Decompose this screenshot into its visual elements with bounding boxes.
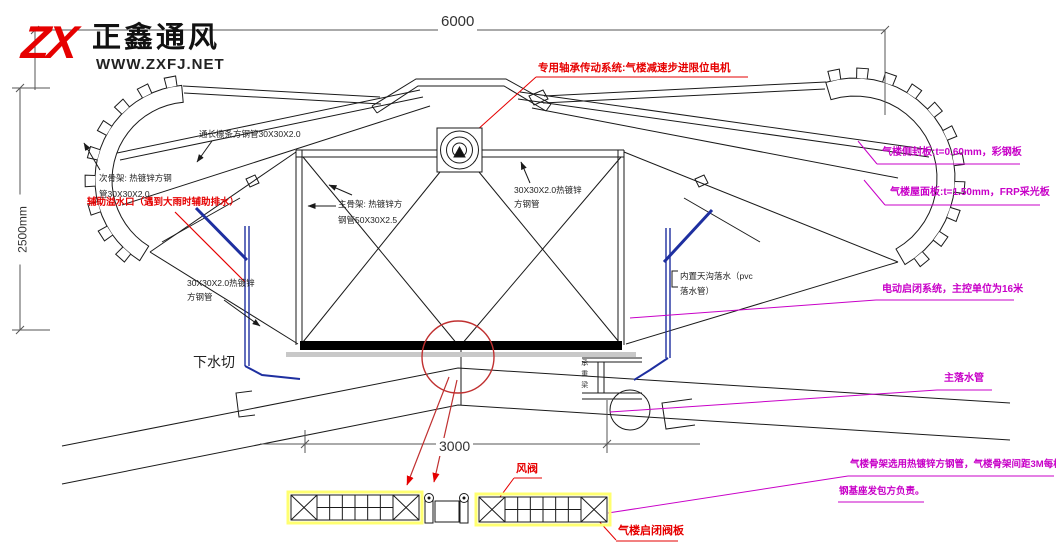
label-side-seal-panel: 气楼侧封板:t=0.60mm，彩钢板 [882, 147, 1022, 160]
company-website: WWW.ZXFJ.NET [96, 56, 225, 75]
dimension-bottom-width: 3000 [436, 438, 473, 456]
label-main-frame: 主骨架: 热镀锌方钢管50X30X2.5 [338, 196, 410, 228]
label-frame-note-2: 钢基座发包方负责。 [839, 486, 925, 498]
valve-panels [288, 492, 610, 525]
valve-bar [286, 341, 636, 357]
label-gutter: 内置天沟落水（pvc落水管） [680, 269, 758, 299]
label-air-valve: 风阀 [516, 463, 538, 477]
label-main-downpipe: 主落水管 [944, 373, 984, 386]
label-tube-left: 30X30X2.0热镀锌方钢管 [187, 276, 259, 304]
label-electric-system: 电动启闭系统，主控单位为16米 [882, 284, 1023, 297]
castellated-crests [85, 68, 965, 267]
label-water-cut: 下水切 [193, 354, 235, 372]
label-tube-right: 30X30X2.0热镀锌方钢管 [514, 183, 586, 211]
label-purlin: 通长檩条方钢管30X30X2.0 [199, 129, 301, 140]
dimension-left-height: 2500mm [16, 195, 31, 265]
company-logo-icon: ZX [19, 14, 78, 72]
cad-drawing-page: ZX 正鑫通风 WWW.ZXFJ.NET 6000 2500mm 3000 专用… [0, 0, 1056, 557]
label-beam: 承重梁 [579, 359, 588, 392]
label-secondary-frame: 次骨架: 热镀锌方钢管30X30X2.0 [99, 170, 177, 202]
label-roof-sheet-panel: 气楼屋面板:t=1.50mm，FRP采光板 [890, 187, 1050, 200]
label-valve-plate: 气楼启闭阀板 [618, 525, 684, 539]
dimension-top-width: 6000 [438, 13, 477, 32]
label-frame-note-1: 气楼骨架选用热镀锌方钢管，气楼骨架间距3M每榀 [850, 459, 1056, 471]
label-drive-system: 专用轴承传动系统:气楼减速步进限位电机 [538, 62, 731, 75]
company-name: 正鑫通风 [92, 20, 220, 56]
drive-motor-detail [437, 128, 482, 172]
